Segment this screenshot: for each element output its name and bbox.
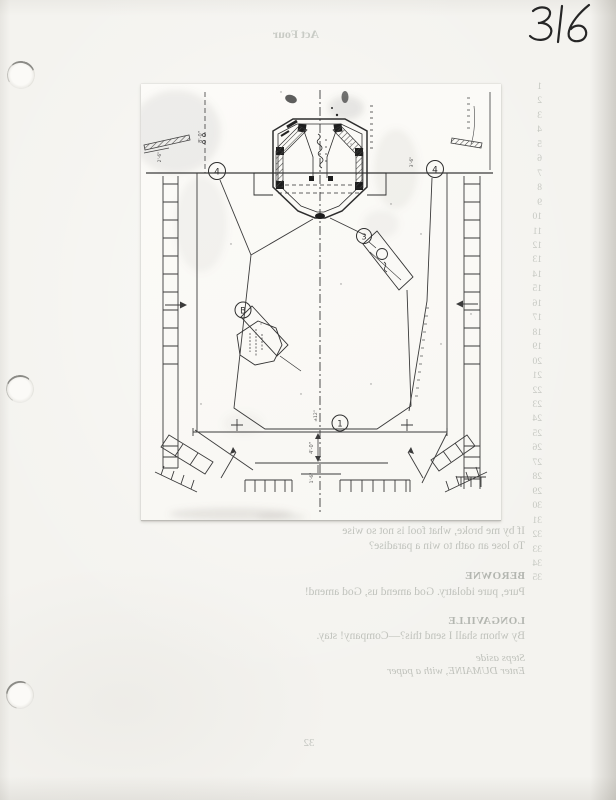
showthrough-line-number: 32	[524, 528, 542, 542]
showthrough-line-number: 11	[524, 225, 542, 239]
showthrough-line-number: 31	[524, 514, 542, 528]
bubble-front: 1	[337, 420, 342, 430]
dim-1ft6: 1'-6"	[309, 473, 315, 484]
showthrough-line-number: 24	[524, 412, 542, 426]
comb-left	[245, 480, 292, 492]
corner-bar-right	[431, 435, 475, 471]
hole-punch	[7, 376, 33, 402]
diag-comb-left	[155, 466, 197, 492]
showthrough-line-number: 34	[524, 557, 542, 571]
stage-plan-drawing: 4 4 3 B 1 8'-0" 2'-6" 3'-6" ±12" 4'-0" 1…	[141, 84, 501, 520]
scanned-page: Act Four 1234567891011121314151617181920…	[0, 0, 616, 800]
showthrough-line-number: 21	[524, 369, 542, 383]
showthrough-line-number: 29	[524, 485, 542, 499]
showthrough-line-number: 30	[524, 499, 542, 513]
showthrough-line-number: 22	[524, 384, 542, 398]
cross-aisle-arrows	[195, 430, 447, 483]
showthrough-line-number: 17	[524, 311, 542, 325]
showthrough-line-number: 16	[524, 297, 542, 311]
showthrough-stage-direction: Steps aside	[476, 652, 525, 664]
showthrough-line-number: 25	[524, 427, 542, 441]
showthrough-line-number: 7	[524, 167, 542, 181]
showthrough-line-number: 6	[524, 152, 542, 166]
showthrough-line: Pure, pure idolatry. God amend us, God a…	[305, 586, 525, 598]
showthrough-line: By whom shall I send this?—Company! stay…	[317, 630, 525, 642]
showthrough-line-number: 5	[524, 138, 542, 152]
entry-arrows	[165, 301, 478, 309]
left-edge-shadow	[0, 0, 10, 800]
dim-2ft6: 2'-6"	[157, 152, 163, 163]
handwritten-page-number: 316	[518, 1, 602, 49]
acting-area	[220, 178, 432, 429]
bubble-grid-left: 4	[214, 168, 220, 178]
dim-3ft6: 3'-6"	[409, 157, 415, 168]
showthrough-script-block: If by me broke, what fool is not so wise…	[293, 519, 525, 689]
front-edge	[155, 419, 487, 492]
specks	[200, 91, 471, 404]
illegible-note-ticks	[370, 106, 373, 148]
showthrough-line-numbers: 1234567891011121314151617181920212223242…	[524, 80, 542, 586]
dim-plus12: ±12"	[313, 410, 319, 422]
showthrough-line: If by me broke, what fool is not so wise	[342, 525, 525, 537]
comb-far-right	[456, 477, 486, 487]
hole-punch	[7, 682, 33, 708]
showthrough-stage-direction: Enter DUMAINE, with a paper	[387, 665, 525, 677]
showthrough-line-number: 19	[524, 340, 542, 354]
right-edge-scan-shadow	[590, 0, 616, 800]
hole-punch	[8, 62, 34, 88]
plexi-wall-line	[409, 178, 432, 411]
showthrough-line-number: 27	[524, 456, 542, 470]
bubble-grid-right: 4	[432, 166, 438, 176]
showthrough-speaker: LONGAVILLE	[448, 615, 525, 627]
dim-8ft: 8'-0"	[198, 131, 204, 143]
showthrough-line-number: 33	[524, 543, 542, 557]
bubble-ramp: 3	[361, 233, 366, 242]
showthrough-line-number: 18	[524, 326, 542, 340]
showthrough-line-number: 15	[524, 282, 542, 296]
showthrough-line-number: 12	[524, 239, 542, 253]
showthrough-line-number: 2	[524, 94, 542, 108]
showthrough-line: To lose an oath to win a paradise?	[369, 540, 525, 552]
showthrough-line-number: 4	[524, 123, 542, 137]
showthrough-line-number: 26	[524, 441, 542, 455]
wall-label-ticks	[415, 308, 429, 396]
prop-unit	[237, 306, 301, 371]
showthrough-page-number: 32	[296, 737, 322, 749]
showthrough-line-number: 20	[524, 355, 542, 369]
showthrough-line-number: 13	[524, 253, 542, 267]
plan-sheet: 4 4 3 B 1 8'-0" 2'-6" 3'-6" ±12" 4'-0" 1…	[141, 84, 501, 521]
showthrough-line-number: 10	[524, 210, 542, 224]
showthrough-line-number: 14	[524, 268, 542, 282]
dim-4ft: 4'-0"	[309, 442, 315, 454]
showthrough-act-header: Act Four	[250, 27, 342, 42]
showthrough-line-number: 9	[524, 196, 542, 210]
showthrough-line-number: 23	[524, 398, 542, 412]
showthrough-speaker: BEROWNE	[465, 570, 525, 582]
showthrough-line-number: 1	[524, 80, 542, 94]
showthrough-line-number: 28	[524, 470, 542, 484]
comb-right	[340, 480, 410, 492]
showthrough-line-number: 35	[524, 571, 542, 585]
showthrough-line-number: 8	[524, 181, 542, 195]
showthrough-line-number: 3	[524, 109, 542, 123]
bubble-prop: B	[240, 307, 246, 317]
